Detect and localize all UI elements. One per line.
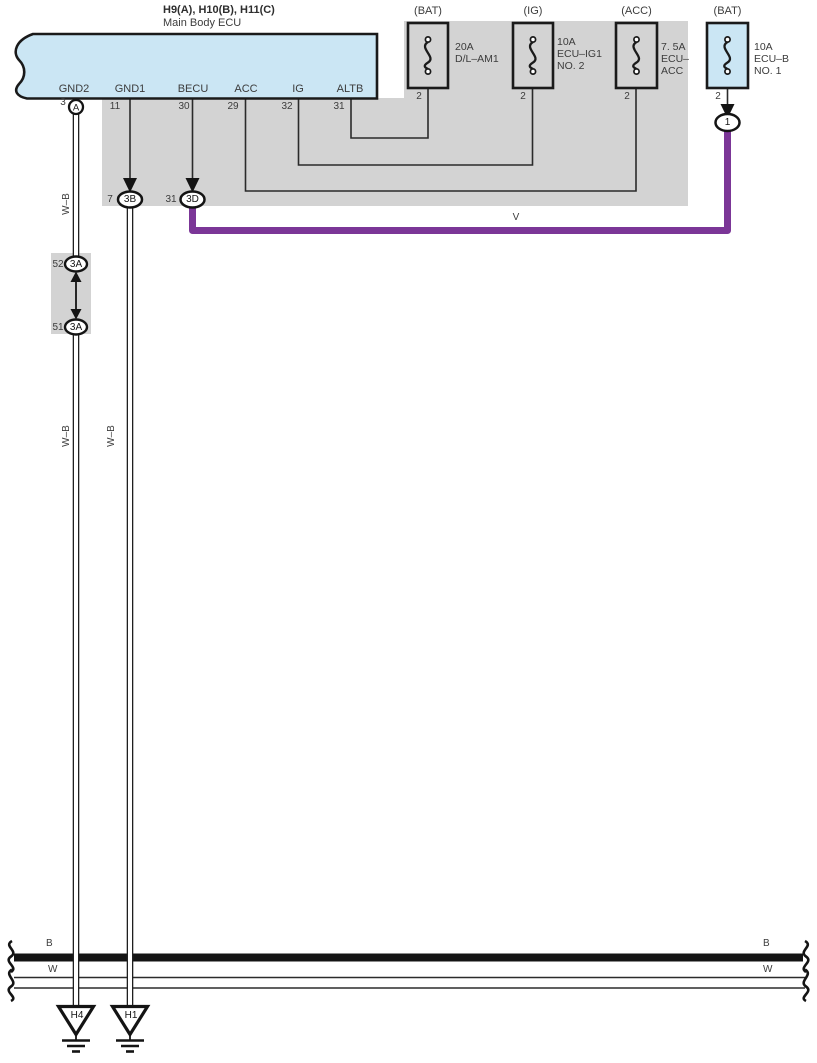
fuse-name-ecu-b: ECU–B xyxy=(754,54,789,65)
wiring-diagram-page: H9(A), H10(B), H11(C) Main Body ECU GND2… xyxy=(0,0,817,1063)
ground-wires xyxy=(76,112,130,1006)
fuse-rating-ecu-acc: 7. 5A xyxy=(661,42,686,53)
connector-3b-label: 3B xyxy=(124,195,136,205)
ecu-pin-label-ig: IG xyxy=(292,84,304,95)
break-mark-left-black xyxy=(9,941,14,972)
bus-label-w-left: W xyxy=(48,965,57,975)
connector-3a-52-pin: 52 xyxy=(52,260,63,270)
connector-3d-pin: 31 xyxy=(165,195,176,205)
ground-h1-label: H1 xyxy=(125,1011,138,1021)
fuse-name2-ecu-b: NO. 1 xyxy=(754,66,781,77)
fuse-source-ecu-ig1: (IG) xyxy=(524,6,543,17)
ecu-pin-label-gnd1: GND1 xyxy=(115,84,146,95)
wire-color-wb-1: W–B xyxy=(62,193,72,215)
connector-1-label: 1 xyxy=(725,118,731,128)
fuse-box-dl-am1 xyxy=(408,23,448,88)
bus-label-b-left: B xyxy=(46,939,53,949)
fuse-box-ecu-b xyxy=(707,23,748,88)
connector-3b-pin: 7 xyxy=(107,195,113,205)
connector-3a-51-pin: 51 xyxy=(52,323,63,333)
ecu-pin-label-gnd2: GND2 xyxy=(59,84,90,95)
fuse-name2-ecu-acc: ACC xyxy=(661,66,683,77)
ecu-pin-number-altb: 31 xyxy=(333,102,344,112)
fuse-pin-ecu-b: 2 xyxy=(715,92,721,102)
fuse-box-ecu-acc xyxy=(616,23,657,88)
fuse-name2-ecu-ig1: NO. 2 xyxy=(557,61,584,72)
fuse-rating-dl-am1: 20A xyxy=(455,42,474,53)
wire-color-v: V xyxy=(513,213,520,223)
connector-3a-51-label: 3A xyxy=(70,323,82,333)
ecu-pin-number-gnd2: 3 xyxy=(60,98,66,108)
fuse-pin-ecu-ig1: 2 xyxy=(520,92,526,102)
ecu-pin-label-becu: BECU xyxy=(178,84,209,95)
wire-color-wb-2: W–B xyxy=(62,425,72,447)
connector-3d-label: 3D xyxy=(186,195,199,205)
fuse-source-ecu-b: (BAT) xyxy=(714,6,742,17)
fuse-rating-ecu-b: 10A xyxy=(754,42,773,53)
ecu-pin-label-altb: ALTB xyxy=(337,84,364,95)
break-mark-right-white xyxy=(804,970,809,1002)
fuse-name-ecu-ig1: ECU–IG1 xyxy=(557,49,602,60)
fuse-name-ecu-acc: ECU– xyxy=(661,54,689,65)
wiring-diagram-canvas xyxy=(0,0,817,1063)
break-mark-right-black xyxy=(804,941,809,972)
bus-label-b-right: B xyxy=(763,939,770,949)
fuse-source-ecu-acc: (ACC) xyxy=(621,6,652,17)
fuse-name-dl-am1: D/L–AM1 xyxy=(455,54,499,65)
fuse-source-dl-am1: (BAT) xyxy=(414,6,442,17)
connector-3a-52-label: 3A xyxy=(70,260,82,270)
ecu-pin-label-acc: ACC xyxy=(234,84,257,95)
ground-h4-label: H4 xyxy=(71,1011,84,1021)
ecu-code-title: H9(A), H10(B), H11(C) xyxy=(163,5,275,16)
harness-region-lower xyxy=(102,98,688,206)
ecu-name-title: Main Body ECU xyxy=(163,18,241,29)
ecu-pin-number-becu: 30 xyxy=(178,102,189,112)
bus-label-w-right: W xyxy=(763,965,772,975)
connector-a-label: A xyxy=(73,103,79,113)
fuse-box-ecu-ig1 xyxy=(513,23,553,88)
fuse-pin-dl-am1: 2 xyxy=(416,92,422,102)
wire-color-wb-3: W–B xyxy=(107,425,117,447)
break-mark-left-white xyxy=(9,970,14,1002)
fuse-rating-ecu-ig1: 10A xyxy=(557,37,576,48)
ecu-pin-number-ig: 32 xyxy=(281,102,292,112)
ecu-pin-number-gnd1: 11 xyxy=(110,102,120,112)
fuse-pin-ecu-acc: 2 xyxy=(624,92,630,102)
ecu-pin-number-acc: 29 xyxy=(227,102,238,112)
